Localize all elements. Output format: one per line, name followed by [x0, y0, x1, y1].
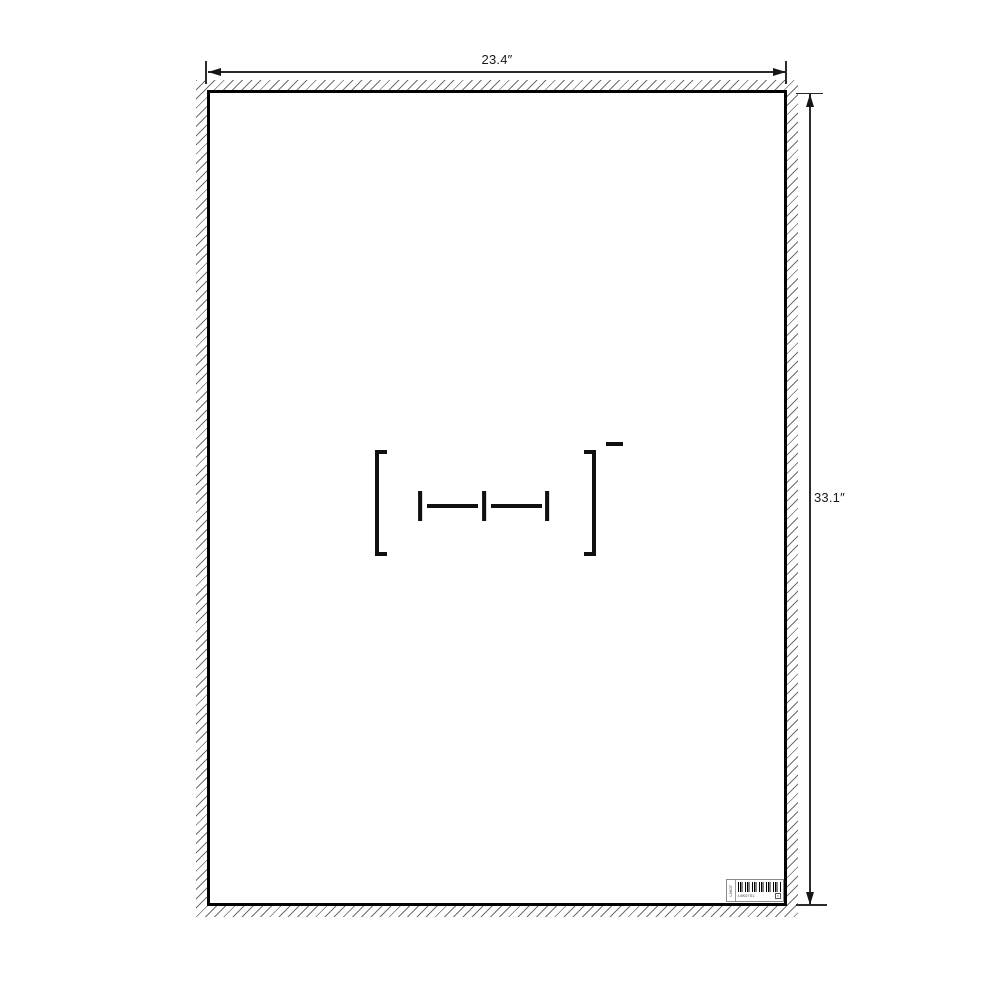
negative-charge-mark [606, 442, 623, 446]
left-bracket [375, 450, 387, 556]
sticker-symbol-box: K [775, 893, 781, 899]
barcode-icon [738, 882, 781, 892]
iodine-atom-1: I [414, 485, 426, 529]
sticker-side-text: L5K07 [729, 885, 733, 897]
bond-1 [427, 504, 478, 508]
sticker-side-strip: L5K07 [727, 880, 736, 901]
arrowhead-left-icon [208, 68, 221, 76]
width-extension-tick-left [205, 61, 207, 84]
product-barcode-sticker: L5K07 L5K07S1 K [726, 879, 784, 902]
right-bracket [584, 450, 596, 556]
width-dimension-line [208, 71, 786, 73]
height-dimension-line [809, 94, 811, 905]
iodine-atom-2: I [478, 485, 490, 529]
poster-dimension-diagram: 23.4″ 33.1″ I I I L5K07 L5K07S1 K [0, 0, 1000, 1000]
arrowhead-down-icon [806, 892, 814, 905]
sticker-code-text: L5K07S1 [738, 894, 754, 898]
arrowhead-up-icon [806, 94, 814, 107]
bond-2 [491, 504, 542, 508]
sticker-main-area: L5K07S1 K [736, 880, 783, 901]
poster-sheet [207, 90, 787, 906]
width-dimension-label: 23.4″ [400, 52, 594, 67]
height-dimension-label: 33.1″ [814, 490, 845, 505]
iodine-atom-3: I [541, 485, 553, 529]
sticker-box-glyph: K [777, 895, 779, 898]
arrowhead-right-icon [773, 68, 786, 76]
